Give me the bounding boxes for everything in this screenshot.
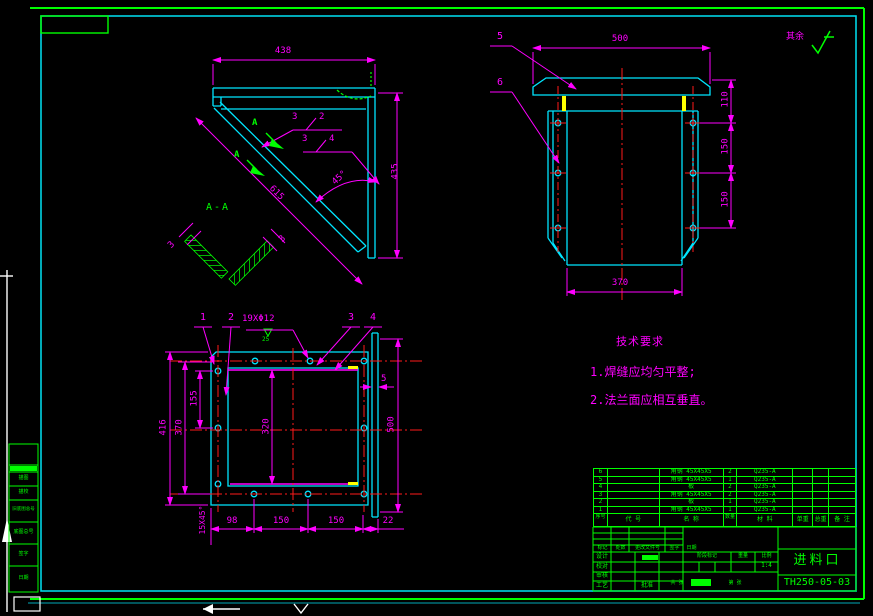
section-cut-arrows — [247, 133, 284, 176]
bom-cell-code — [608, 492, 660, 499]
bom-cell-name: 角钢 45X45X5 — [660, 492, 724, 499]
bom-header-code: 代 号 — [608, 514, 660, 527]
tb-scale-value: 1:4 — [756, 563, 777, 569]
bom-cell-remark — [829, 492, 855, 499]
redacted-bar — [10, 466, 37, 471]
bom-cell-no: 5 — [594, 477, 608, 484]
bom-table: 6角钢 45X45X52Q235-A 5角钢 45X45X51Q235-A 4板… — [593, 468, 856, 527]
weld-callout-1-right: 2 — [319, 113, 324, 122]
bom-cell-remark — [829, 477, 855, 484]
bom-cell-material: Q235-A — [737, 507, 793, 514]
bom-cell-code — [608, 507, 660, 514]
center-mark-icon — [294, 604, 308, 613]
margin-label: 日期 — [10, 576, 37, 581]
trim-arrow-icon — [203, 604, 213, 614]
callout-1: 1 — [193, 313, 213, 323]
bom-row: 4板2Q235-A — [594, 484, 855, 492]
dim-22-label: 22 — [368, 517, 408, 526]
tb-weight-label: 重量 — [732, 554, 754, 559]
tb-sheets-label: 共 张 — [664, 581, 690, 586]
bom-cell-total-weight — [813, 484, 829, 491]
bom-cell-material: Q235-A — [737, 477, 793, 484]
part-name-title: 进料口 — [780, 554, 855, 567]
bom-cell-code — [608, 477, 660, 484]
dim-435-label: 435 — [392, 157, 401, 187]
bom-cell-qty: 2 — [724, 492, 738, 499]
bom-cell-remark — [829, 507, 855, 514]
callout-4: 4 — [363, 313, 383, 323]
tb-count-label: 处数 — [612, 546, 629, 551]
tb-sheet-no-label: 第 张 — [722, 581, 748, 586]
weld-callout-1-left: 3 — [292, 113, 297, 122]
bom-header-material: 材 料 — [737, 514, 793, 527]
section-arrow-label-a1: A — [252, 119, 257, 128]
tb-review-label: 审核 — [593, 573, 611, 579]
tb-mark-label: 标记 — [594, 546, 611, 551]
section-title: A-A — [206, 203, 230, 213]
bom-cell-no: 1 — [594, 507, 608, 514]
margin-label: 描校 — [10, 490, 37, 495]
callout-6: 6 — [490, 78, 510, 88]
bom-cell-material: Q235-A — [737, 499, 793, 506]
bom-cell-no: 2 — [594, 499, 608, 506]
bom-cell-material: Q235-A — [737, 484, 793, 491]
bom-cell-unit-weight — [793, 499, 813, 506]
bom-cell-total-weight — [813, 492, 829, 499]
dim-150-label: 150 — [722, 185, 731, 215]
bom-cell-name: 角钢 45X45X5 — [660, 507, 724, 514]
tb-check-label: 校对 — [593, 564, 611, 570]
tb-sign-label: 签字 — [666, 546, 683, 551]
bom-cell-name: 板 — [660, 484, 724, 491]
section-arrow-icon — [269, 139, 284, 149]
bom-cell-remark — [829, 499, 855, 506]
tb-date-label: 日期 — [684, 546, 699, 551]
callout-3: 3 — [341, 313, 361, 323]
bom-row: 3角钢 45X45X52Q235-A — [594, 492, 855, 500]
bom-cell-qty: 1 — [724, 507, 738, 514]
bom-cell-material: Q235-A — [737, 492, 793, 499]
bracket-view-dimensions — [196, 60, 403, 284]
callout-2: 2 — [221, 313, 241, 323]
bom-header-name: 名 称 — [660, 514, 724, 527]
bom-cell-unit-weight — [793, 507, 813, 514]
tb-design-label: 设计 — [593, 554, 611, 560]
dim-438-label: 438 — [263, 47, 303, 56]
dim-110-label: 110 — [722, 85, 731, 115]
dim-5-label: 5 — [381, 375, 386, 384]
bom-cell-total-weight — [813, 469, 829, 476]
section-arrow-label-a2: A — [234, 151, 239, 160]
bom-cell-no: 6 — [594, 469, 608, 476]
bom-header-qty: 数量 — [724, 514, 738, 527]
tb-process-label: 工艺 — [593, 583, 611, 589]
margin-label: 签字 — [10, 552, 37, 557]
bom-cell-qty: 1 — [724, 477, 738, 484]
bom-header-remark: 备 注 — [829, 514, 855, 527]
tb-approve-label: 批准 — [636, 583, 658, 589]
bom-cell-name: 角钢 45X45X5 — [660, 469, 724, 476]
front-view-centerlines — [550, 68, 701, 302]
bom-cell-remark — [829, 469, 855, 476]
bom-cell-unit-weight — [793, 469, 813, 476]
drawing-number: TH250-05-03 — [779, 578, 855, 588]
tb-stage-label: 阶段标记 — [684, 554, 730, 559]
bom-cell-unit-weight — [793, 477, 813, 484]
weld-callout-2-left: 3 — [302, 135, 307, 144]
dim-370-plan-label: 370 — [176, 413, 185, 443]
bom-cell-no: 3 — [594, 492, 608, 499]
tb-scale-label: 比例 — [756, 554, 777, 559]
dim-370-label: 370 — [600, 279, 640, 288]
weld-size-label: 25 — [262, 337, 269, 343]
bom-cell-material: Q235-A — [737, 469, 793, 476]
bom-cell-qty: 2 — [724, 484, 738, 491]
callout-5: 5 — [490, 32, 510, 42]
chamfer-note-label: 15X45° — [199, 498, 207, 542]
margin-label: 描图 — [10, 476, 37, 481]
bom-row: 5角钢 45X45X51Q235-A — [594, 477, 855, 485]
hole-note-label: 19XΦ12 — [242, 315, 275, 324]
bom-cell-code — [608, 484, 660, 491]
bom-cell-unit-weight — [793, 484, 813, 491]
bracket-weld-hidden-arc — [337, 72, 371, 99]
dim-98-label: 98 — [212, 517, 252, 526]
section-aa-detail — [179, 223, 285, 285]
tech-requirements-title: 技术要求 — [616, 336, 664, 347]
weld-callout-2-right: 4 — [329, 135, 334, 144]
dim-500-plan-label: 500 — [388, 410, 397, 440]
redacted-bar — [642, 555, 658, 560]
surface-finish-check-icon — [812, 31, 834, 53]
dim-150-bottom-label: 150 — [261, 517, 301, 526]
bom-row: 1角钢 45X45X51Q235-A — [594, 507, 855, 515]
front-view-highlights — [562, 96, 686, 111]
bom-header-no: 序号 — [594, 514, 608, 527]
dim-320-label: 320 — [263, 412, 272, 442]
bom-row: 6角钢 45X45X52Q235-A — [594, 469, 855, 477]
bom-cell-total-weight — [813, 507, 829, 514]
bom-cell-no: 4 — [594, 484, 608, 491]
dim-150-label: 150 — [722, 132, 731, 162]
bom-cell-remark — [829, 484, 855, 491]
bom-cell-unit-weight — [793, 492, 813, 499]
bom-cell-qty: 2 — [724, 469, 738, 476]
bom-cell-total-weight — [813, 477, 829, 484]
margin-label: 旧底图总号 — [10, 508, 37, 513]
tech-requirement-1: 1.焊缝应均匀平整; — [590, 366, 696, 378]
bom-cell-code — [608, 469, 660, 476]
bom-cell-qty: 1 — [724, 499, 738, 506]
bom-header-total-weight: 总重 — [813, 514, 829, 527]
tech-requirement-2: 2.法兰面应相互垂直。 — [590, 394, 712, 406]
tb-doc-label: 更改文件号 — [630, 546, 665, 551]
dim-416-label: 416 — [160, 413, 169, 443]
cad-drawing-sheet: 438 435 615 45° 3 2 3 4 A A A-A 3 3 5 6 … — [0, 0, 873, 616]
dim-500-top-label: 500 — [600, 35, 640, 44]
margin-label: 底图总号 — [10, 530, 37, 535]
bom-header-row: 序号代 号名 称数量材 料单重总重备 注 — [594, 514, 855, 527]
bom-cell-name: 角钢 45X45X5 — [660, 477, 724, 484]
bom-header-unit-weight: 单重 — [793, 514, 813, 527]
surface-finish-label: 其余 — [786, 33, 804, 42]
bom-cell-total-weight — [813, 499, 829, 506]
dim-155-label: 155 — [191, 384, 200, 414]
bom-cell-code — [608, 499, 660, 506]
margin-strip-grid — [9, 444, 38, 592]
bom-row: 2板1Q235-A — [594, 499, 855, 507]
dim-150-bottom-label: 150 — [316, 517, 356, 526]
front-view-dimensions — [490, 46, 736, 296]
bom-cell-name: 板 — [660, 499, 724, 506]
redacted-bar — [691, 579, 711, 586]
